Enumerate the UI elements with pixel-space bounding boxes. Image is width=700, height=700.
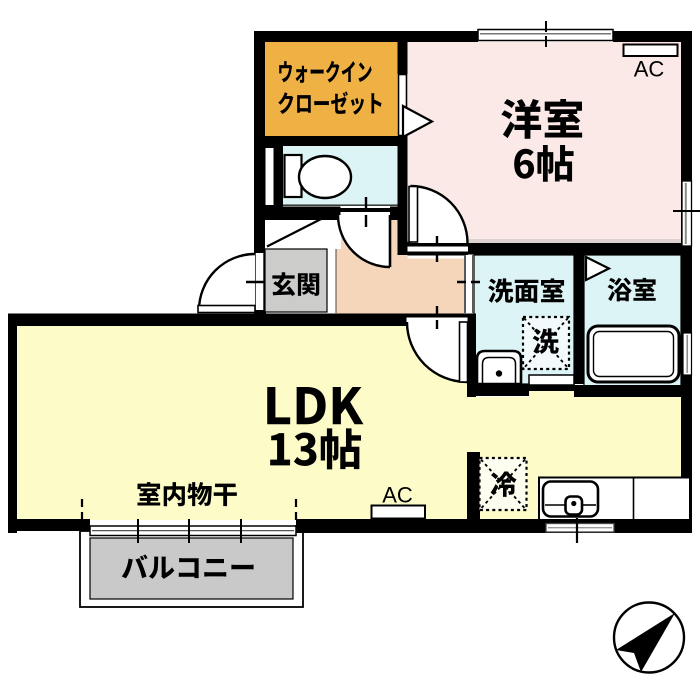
svg-text:AC: AC xyxy=(634,57,665,82)
svg-text:AC: AC xyxy=(382,483,413,508)
